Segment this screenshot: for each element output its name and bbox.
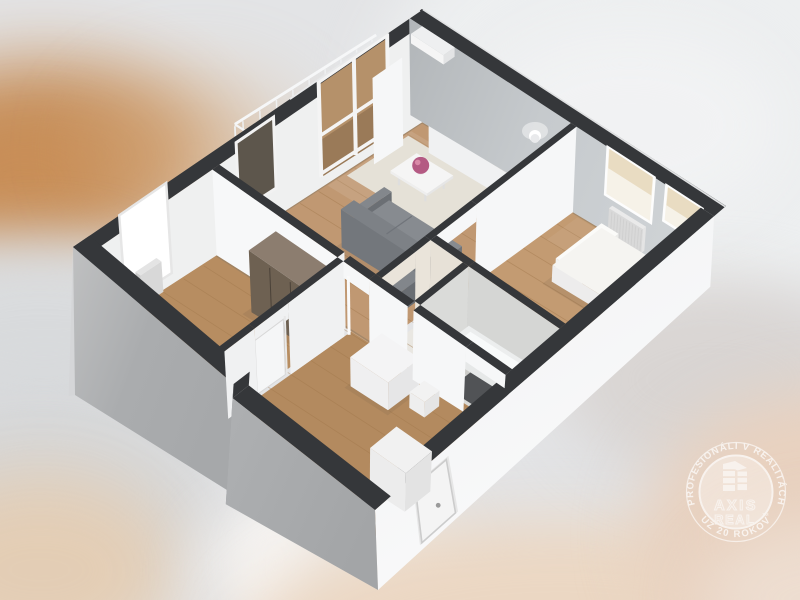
svg-text:TM: TM xyxy=(762,512,769,517)
svg-text:REAL: REAL xyxy=(714,513,755,527)
svg-text:AXIS: AXIS xyxy=(714,498,758,514)
